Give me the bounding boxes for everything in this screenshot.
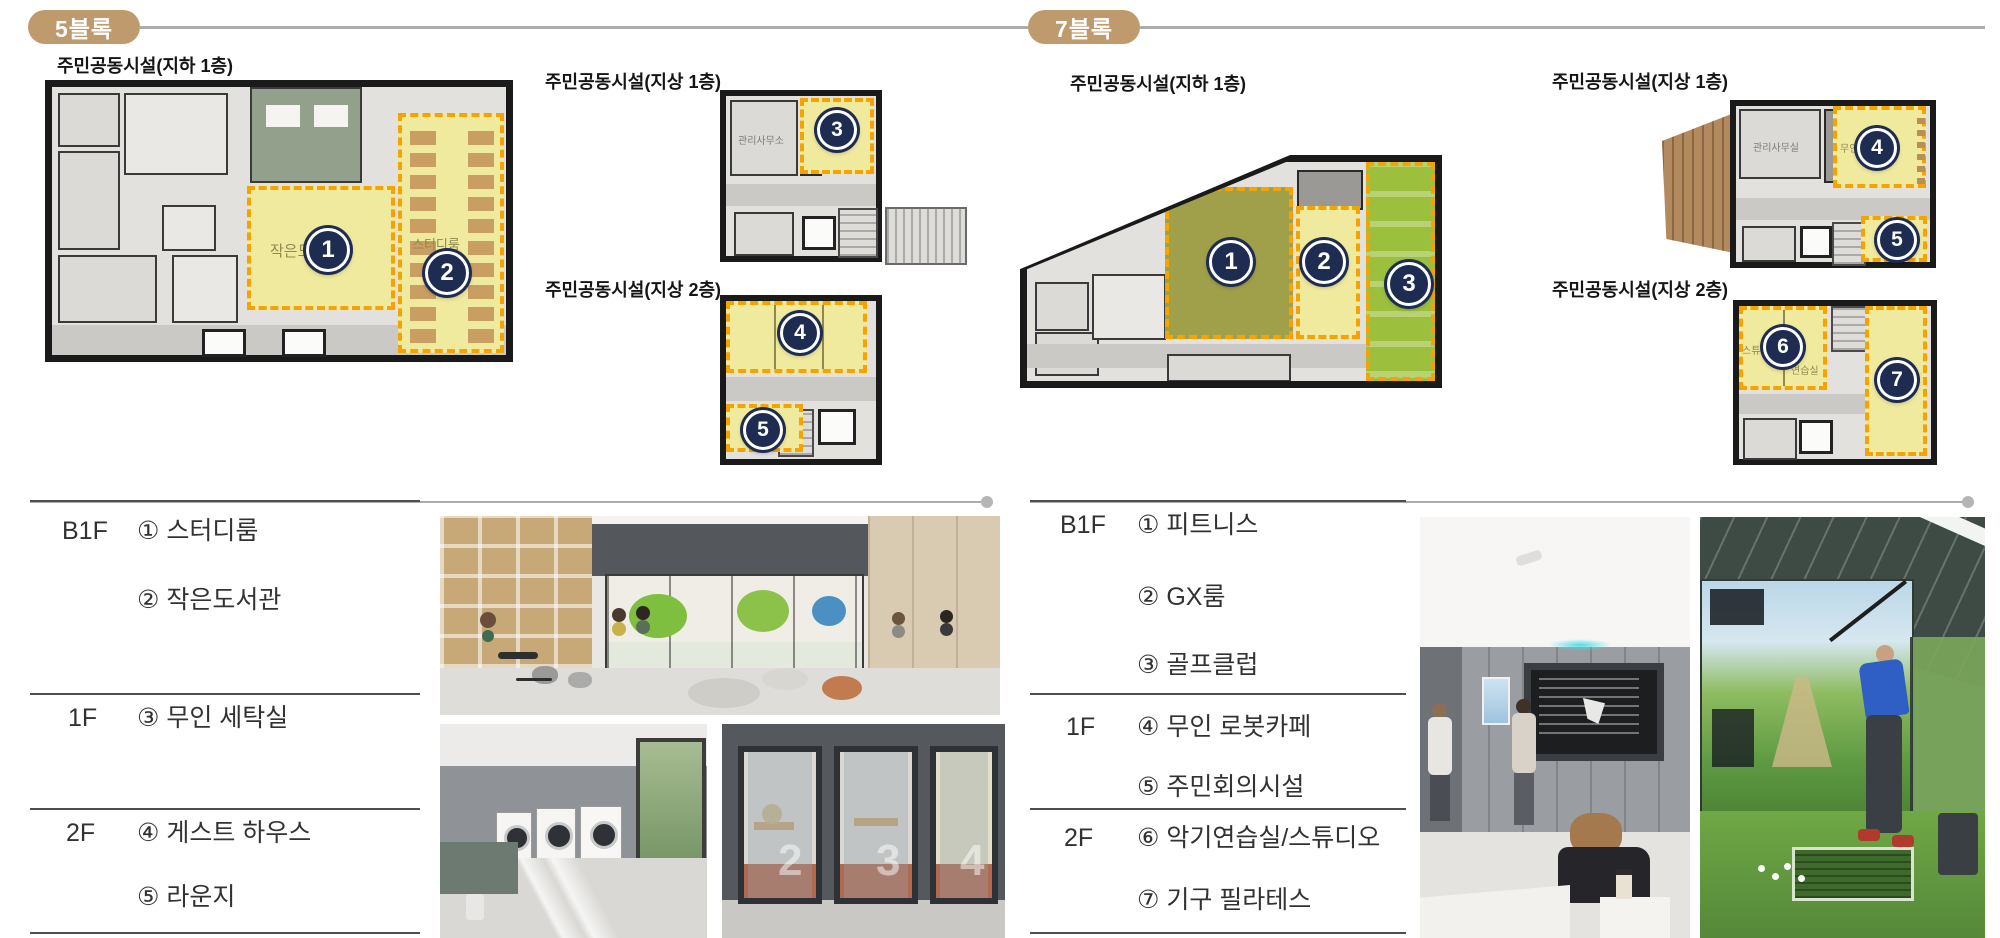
photo-person <box>480 612 496 628</box>
floorplan-b5-b1f: 작은도서관 1 스터디룸 2 <box>45 80 513 362</box>
photo-washer <box>580 806 622 866</box>
plan-room <box>58 93 120 147</box>
golfer-shoes <box>1858 829 1880 841</box>
booth-frame: 2 <box>738 746 822 904</box>
legend-item: ② GX룸 <box>1137 582 1225 612</box>
header-rule-left <box>139 26 1028 29</box>
legend-line <box>1030 693 1406 695</box>
block7-badge: 7블록 <box>1028 10 1140 44</box>
garden-table <box>266 105 300 127</box>
plan-marker-5: 5 <box>1877 220 1917 260</box>
plan-room <box>1035 282 1089 331</box>
screen-fairway-path <box>1772 677 1832 767</box>
plan-marker-4: 4 <box>1857 128 1897 168</box>
floorplan-b7-b1f-interior: 1 2 3 <box>1027 162 1435 381</box>
photo-floor <box>722 900 1005 938</box>
legend-item: ① 피트니스 <box>1137 510 1258 540</box>
legend-item: ① 스터디룸 <box>137 516 258 546</box>
plan-marker-3: 3 <box>1387 262 1431 306</box>
legend-item: ⑤ 라운지 <box>137 882 235 912</box>
plan-marker-1: 1 <box>1209 240 1253 284</box>
plan-marker-3: 3 <box>817 110 857 150</box>
legend-item: ② 작은도서관 <box>137 585 281 615</box>
floorplan-b5-2f: 4 5 <box>720 295 882 465</box>
booth-interior: 2 <box>744 752 816 898</box>
legend-floor-2f: 2F <box>1064 823 1093 853</box>
plan-marker-2: 2 <box>1302 240 1346 284</box>
plan-caption-b7-2f: 주민공동시설(지상 2층) <box>1552 276 1728 302</box>
header-rule-right <box>1140 26 1985 29</box>
plan-room <box>58 255 157 323</box>
photo-glass-wall <box>605 574 864 672</box>
plan-room <box>1742 226 1796 262</box>
lounge-library-render <box>440 516 1000 715</box>
legend-item: ④ 무인 로봇카페 <box>1137 712 1311 742</box>
plan-elevator <box>202 329 246 357</box>
neon-sign <box>1548 639 1612 651</box>
plan-room <box>124 93 228 175</box>
plan-caption-b5-1f: 주민공동시설(지상 1층) <box>545 68 721 94</box>
photo-beanbag <box>822 676 862 700</box>
plan-room <box>58 151 120 250</box>
photo-side-screen <box>1910 637 1985 837</box>
photo-person-head <box>1516 699 1531 714</box>
plan-marker-1: 1 <box>306 228 350 272</box>
plan-room-office: 관리사무실 <box>1739 109 1821 179</box>
plan-room <box>162 205 216 251</box>
block5-badge: 5블록 <box>28 10 140 44</box>
legend-line <box>30 932 420 934</box>
photo-stool <box>466 894 484 920</box>
room-label-study: 스터디룸 <box>412 234 460 253</box>
wood-deck <box>1662 113 1734 253</box>
office-label: 관리사무실 <box>1753 139 1799 154</box>
plan-caption-b5-b1f: 주민공동시설(지하 1층) <box>57 52 233 78</box>
golfer-torso <box>1858 658 1909 720</box>
cafe-seats <box>1917 114 1925 184</box>
booth-frame: 3 <box>834 746 918 904</box>
plan-marker-5: 5 <box>743 410 783 450</box>
plan-garden <box>250 87 362 183</box>
photo-menu-screen <box>1524 663 1664 761</box>
washer-door <box>590 821 618 849</box>
plan-stairs <box>1831 306 1869 352</box>
plan-room <box>1167 354 1291 382</box>
photo-beanbag <box>688 678 760 708</box>
legend-floor-1f: 1F <box>68 703 97 733</box>
photo-stool <box>568 672 592 688</box>
room-partition <box>822 305 824 369</box>
ball-dispenser <box>1938 813 1978 875</box>
community-facility-brochure-page: 5블록 7블록 주민공동시설(지하 1층) 주민공동시설(지상 1층) 주민공동… <box>0 0 2000 938</box>
coffee-cup <box>1616 869 1632 899</box>
study-carrels <box>468 125 494 343</box>
floorplan-b7-1f: 관리사무실 무인 로봇카페 4 5 <box>1730 100 1936 268</box>
study-booth-render: 2 3 4 <box>722 724 1005 938</box>
plan-corridor <box>726 377 876 401</box>
photo-stool <box>532 666 558 684</box>
legend-item: ④ 게스트 하우스 <box>137 818 311 848</box>
legend-item: ⑦ 기구 필라테스 <box>1137 885 1311 915</box>
legend-line <box>1030 932 1406 934</box>
photo-poster <box>1482 677 1510 725</box>
plan-room <box>1297 170 1363 210</box>
floorplan-b7-2f: 스튜디오 연습실 6 7 <box>1733 300 1937 465</box>
legend-floor-2f: 2F <box>66 818 95 848</box>
legend-line <box>1030 500 1406 502</box>
plan-caption-b5-2f: 주민공동시설(지상 2층) <box>545 276 721 302</box>
plan-room <box>1743 418 1797 460</box>
section-rule-right-dot <box>1962 496 1974 508</box>
washer-door <box>545 822 573 850</box>
plan-corridor <box>726 184 876 206</box>
floorplan-b7-b1f: 1 2 3 <box>1020 155 1442 388</box>
photo-person-body <box>1512 713 1536 773</box>
photo-table <box>1600 897 1670 938</box>
plan-stairs <box>838 208 878 258</box>
plan-room-office: 관리사무소 <box>730 100 798 176</box>
robot-cafe-render <box>1420 517 1690 938</box>
booth-interior: 4 <box>936 752 992 898</box>
legend-floor-1f: 1F <box>1066 712 1095 742</box>
photo-person-head <box>1432 703 1447 718</box>
photo-wood-panel <box>868 516 1000 668</box>
legend-line <box>30 808 420 810</box>
outdoor-stairs <box>885 207 967 265</box>
photo-washer <box>536 808 576 864</box>
plan-room <box>172 255 238 323</box>
laundry-room-render <box>440 724 707 938</box>
photo-person <box>612 608 626 622</box>
room-label-practice: 연습실 <box>1791 362 1819 377</box>
photo-person-legs <box>1514 773 1534 825</box>
plan-elevator <box>1799 420 1833 454</box>
photo-bookshelf <box>440 516 592 668</box>
legend-line <box>30 693 420 695</box>
booth-number: 4 <box>960 836 984 886</box>
plan-marker-6: 6 <box>1763 327 1803 367</box>
photo-counter <box>440 842 518 894</box>
photo-blue-pod <box>812 596 846 626</box>
screen-hud <box>1710 589 1764 625</box>
photo-person <box>636 606 650 620</box>
legend-line <box>1030 808 1406 810</box>
plan-corridor <box>1739 394 1865 414</box>
photo-person-legs <box>1430 775 1450 821</box>
legend-item: ⑥ 악기연습실/스튜디오 <box>1137 823 1380 853</box>
garden-table <box>314 105 348 127</box>
plan-elevator <box>1800 226 1832 258</box>
plan-elevator <box>818 409 856 445</box>
photo-wall-band <box>558 524 892 576</box>
legend-floor-b1f: B1F <box>1060 510 1106 540</box>
photo-person <box>940 610 953 623</box>
floorplan-b5-1f: 관리사무소 3 <box>720 90 882 262</box>
plan-elevator <box>802 216 836 250</box>
plan-caption-b7-b1f: 주민공동시설(지하 1층) <box>1070 70 1246 96</box>
legend-line <box>30 500 420 502</box>
plan-marker-4: 4 <box>780 313 820 353</box>
golf-simulator-render <box>1700 517 1985 938</box>
legend-item: ⑤ 주민회의시설 <box>1137 772 1304 802</box>
legend-floor-b1f: B1F <box>62 516 108 546</box>
booth-frame: 4 <box>930 746 998 904</box>
section-rule-left-dot <box>981 496 993 508</box>
booth-number: 2 <box>778 836 802 886</box>
photo-ceiling <box>1420 517 1690 647</box>
room-partition <box>774 305 776 369</box>
photo-person <box>892 612 905 625</box>
plan-elevator <box>282 329 326 357</box>
plan-room <box>1092 274 1166 340</box>
screen-hud <box>1712 709 1754 767</box>
plan-marker-2: 2 <box>425 251 469 295</box>
plan-room <box>734 212 794 256</box>
highlight-room-2 <box>398 113 504 353</box>
legend-item: ③ 무인 세탁실 <box>137 703 288 733</box>
photo-beanbag <box>762 668 808 690</box>
golfer-legs <box>1866 715 1902 833</box>
plan-caption-b7-1f: 주민공동시설(지상 1층) <box>1552 68 1728 94</box>
booth-interior: 3 <box>840 752 912 898</box>
photo-table <box>498 652 538 659</box>
plan-marker-7: 7 <box>1877 360 1917 400</box>
legend-item: ③ 골프클럽 <box>1137 650 1258 680</box>
office-label: 관리사무소 <box>738 132 784 147</box>
photo-person-body <box>1428 717 1452 775</box>
seated-person-body <box>1558 847 1650 903</box>
golf-balls <box>1758 865 1765 872</box>
hitting-mat <box>1792 847 1914 901</box>
booth-number: 3 <box>876 836 900 886</box>
photo-green-pod <box>737 590 789 632</box>
